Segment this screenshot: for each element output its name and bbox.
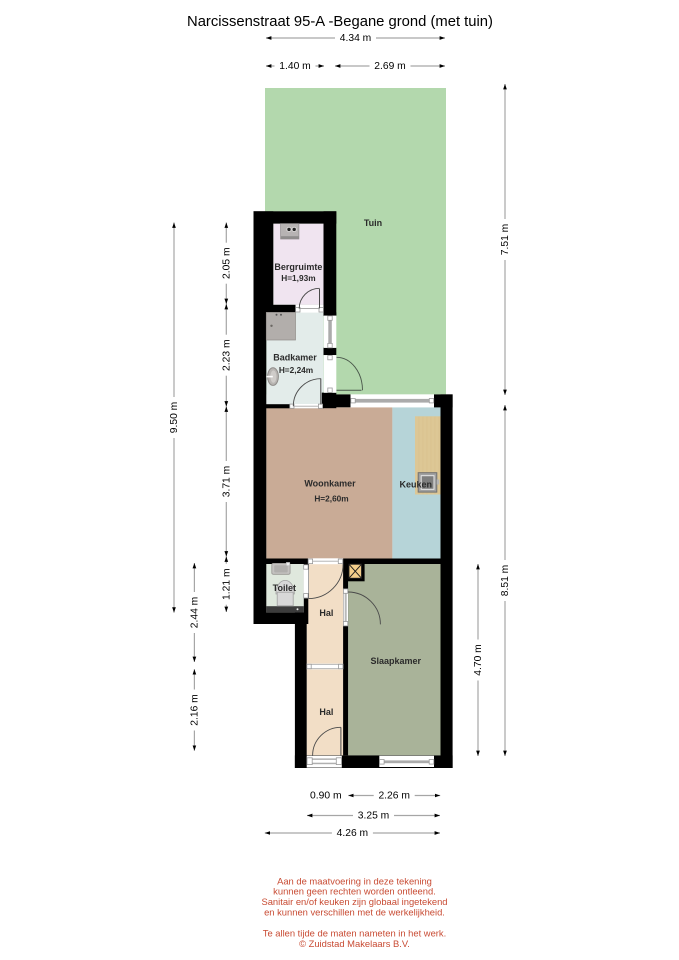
svg-text:8.51 m: 8.51 m [500,565,511,596]
svg-text:kunnen geen rechten worden ont: kunnen geen rechten worden ontleend. [273,886,436,897]
svg-text:Toilet: Toilet [273,583,296,593]
svg-text:Woonkamer: Woonkamer [304,479,356,489]
svg-text:0.90 m: 0.90 m [310,791,341,802]
svg-text:Hal: Hal [319,707,333,717]
svg-text:Keuken: Keuken [400,479,433,489]
svg-text:4.26 m: 4.26 m [337,828,368,839]
svg-text:Badkamer: Badkamer [273,353,317,363]
svg-text:1.21 m: 1.21 m [221,568,232,599]
svg-text:Slaapkamer: Slaapkamer [371,656,422,666]
svg-text:2.05 m: 2.05 m [221,247,232,278]
svg-text:1.40 m: 1.40 m [279,61,310,72]
svg-text:2.26 m: 2.26 m [378,791,409,802]
svg-text:Tuin: Tuin [364,218,382,228]
svg-text:H=1,93m: H=1,93m [281,273,315,283]
svg-text:2.23 m: 2.23 m [221,339,232,370]
svg-text:H=2,24m: H=2,24m [279,365,313,375]
svg-text:7.51 m: 7.51 m [500,224,511,255]
svg-text:en kunnen verschillen met de w: en kunnen verschillen met de werkelijkhe… [264,907,445,918]
svg-text:2.16 m: 2.16 m [189,694,200,725]
svg-text:H=2,60m: H=2,60m [314,493,348,503]
svg-text:4.70 m: 4.70 m [473,644,484,675]
svg-text:Hal: Hal [319,608,333,618]
svg-text:4.34 m: 4.34 m [340,33,371,44]
svg-text:Bergruimte: Bergruimte [274,262,322,272]
svg-text:3.71 m: 3.71 m [221,466,232,497]
svg-text:2.44 m: 2.44 m [189,597,200,628]
svg-text:3.25 m: 3.25 m [358,811,389,822]
svg-text:Narcissenstraat 95-A -Begane g: Narcissenstraat 95-A -Begane grond (met … [187,14,493,30]
svg-text:2.69 m: 2.69 m [374,61,405,72]
svg-text:Sanitair en/of keuken zijn glo: Sanitair en/of keuken zijn globaal inget… [261,896,447,907]
svg-text:© Zuidstad Makelaars B.V.: © Zuidstad Makelaars B.V. [299,938,410,949]
svg-text:9.50 m: 9.50 m [169,402,180,433]
